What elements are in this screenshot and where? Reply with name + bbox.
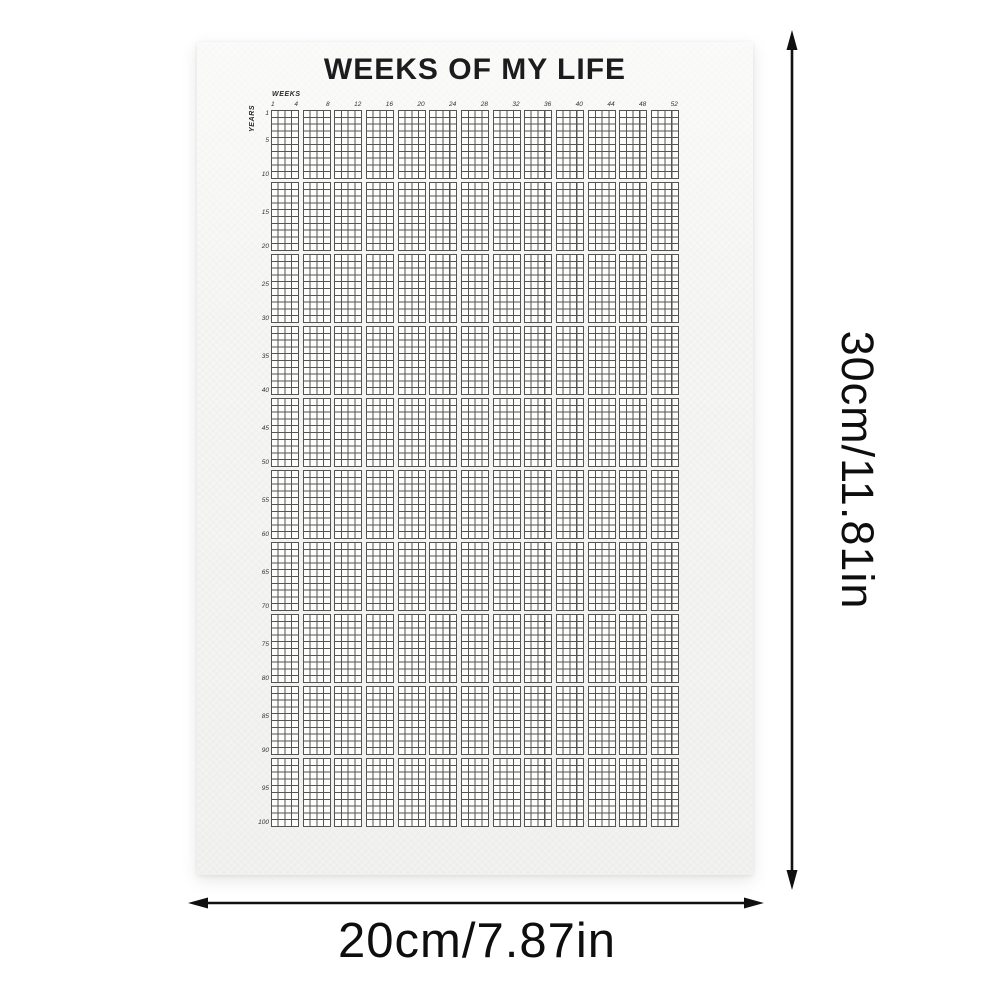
year-label-block: 1520 — [251, 182, 269, 251]
week-cells-block — [366, 326, 394, 395]
year-number: 50 — [262, 459, 269, 466]
arrowhead-right-icon — [744, 898, 764, 909]
week-cells-block — [461, 758, 489, 827]
week-number: 4 — [271, 101, 299, 109]
year-number: 60 — [262, 531, 269, 538]
week-cells-block — [303, 758, 331, 827]
week-number: 8 — [303, 101, 331, 109]
year-label-block: 7580 — [251, 614, 269, 683]
week-cells-block — [556, 542, 584, 611]
week-cells-block — [303, 614, 331, 683]
week-cells-block — [334, 758, 362, 827]
year-number: 25 — [262, 281, 269, 288]
week-cells-block — [619, 110, 647, 179]
year-number: 5 — [265, 137, 269, 144]
week-cells-block — [556, 398, 584, 467]
week-cells-block — [334, 542, 362, 611]
week-cells-block — [588, 326, 616, 395]
week-cells-block — [651, 542, 679, 611]
year-label-block: 6570 — [251, 542, 269, 611]
week-cells-block — [524, 326, 552, 395]
week-cells-block — [556, 758, 584, 827]
week-number: 1 — [271, 101, 275, 109]
week-cells-block — [588, 686, 616, 755]
week-cells-block — [429, 110, 457, 179]
year-numbers-column: 1510152025303540455055606570758085909510… — [251, 110, 269, 827]
week-cells-block — [493, 398, 521, 467]
week-cells-block — [398, 686, 426, 755]
week-cells-block — [303, 110, 331, 179]
week-number: 16 — [366, 101, 394, 109]
week-cells-block — [619, 326, 647, 395]
week-cells-block — [461, 686, 489, 755]
week-cells-block — [366, 110, 394, 179]
week-cells-block — [334, 254, 362, 323]
life-calendar-poster: WEEKS OF MY LIFE WEEKS YEARS 14812162024… — [197, 42, 753, 875]
week-number: 20 — [398, 101, 426, 109]
product-photo-scene: WEEKS OF MY LIFE WEEKS YEARS 14812162024… — [0, 0, 1000, 1000]
week-cells-block — [429, 398, 457, 467]
week-cells-block — [366, 470, 394, 539]
week-cells-block — [461, 398, 489, 467]
year-number: 80 — [262, 675, 269, 682]
week-cells-block — [651, 326, 679, 395]
week-cells-block — [303, 470, 331, 539]
week-cells-block — [619, 686, 647, 755]
week-cells-block — [619, 758, 647, 827]
year-label-block: 1510 — [251, 110, 269, 179]
week-cells-block — [524, 254, 552, 323]
life-weeks-grid — [271, 110, 679, 827]
week-cells-block — [366, 398, 394, 467]
week-cells-block — [588, 470, 616, 539]
week-number: 12 — [334, 101, 362, 109]
arrowhead-down-icon — [787, 870, 798, 890]
year-number: 30 — [262, 315, 269, 322]
week-cells-block — [334, 686, 362, 755]
week-cells-block — [334, 182, 362, 251]
week-cells-block — [493, 326, 521, 395]
week-number: 48 — [619, 101, 647, 109]
week-cells-block — [524, 470, 552, 539]
week-cells-block — [524, 542, 552, 611]
week-cells-block — [493, 470, 521, 539]
week-cells-block — [303, 686, 331, 755]
week-cells-block — [651, 758, 679, 827]
week-cells-block — [651, 470, 679, 539]
week-cells-block — [619, 614, 647, 683]
width-dimension-label: 20cm/7.87in — [338, 913, 616, 969]
week-number: 36 — [524, 101, 552, 109]
week-cells-block — [461, 542, 489, 611]
week-cells-block — [398, 110, 426, 179]
week-cells-block — [461, 182, 489, 251]
year-number: 100 — [258, 819, 269, 826]
week-cells-block — [429, 254, 457, 323]
week-number: 24 — [429, 101, 457, 109]
week-cells-block — [588, 182, 616, 251]
week-cells-block — [493, 254, 521, 323]
week-cells-block — [461, 470, 489, 539]
week-cells-block — [524, 110, 552, 179]
year-number: 35 — [262, 353, 269, 360]
week-cells-block — [271, 326, 299, 395]
week-cells-block — [429, 470, 457, 539]
week-cells-block — [366, 182, 394, 251]
week-cells-block — [588, 254, 616, 323]
height-dimension-arrow — [784, 30, 800, 890]
year-number: 10 — [262, 171, 269, 178]
week-cells-block — [366, 686, 394, 755]
year-number: 15 — [262, 209, 269, 216]
year-number: 40 — [262, 387, 269, 394]
week-cells-block — [588, 110, 616, 179]
week-cells-block — [271, 686, 299, 755]
week-cells-block — [556, 326, 584, 395]
week-cells-block — [524, 182, 552, 251]
week-cells-block — [398, 470, 426, 539]
week-cells-block — [429, 686, 457, 755]
week-number: 32 — [493, 101, 521, 109]
week-cells-block — [524, 686, 552, 755]
week-cells-block — [651, 182, 679, 251]
year-number: 75 — [262, 641, 269, 648]
year-number: 90 — [262, 747, 269, 754]
week-cells-block — [398, 614, 426, 683]
week-cells-block — [493, 182, 521, 251]
year-label-block: 5560 — [251, 470, 269, 539]
year-number: 70 — [262, 603, 269, 610]
week-cells-block — [429, 758, 457, 827]
week-cells-block — [303, 254, 331, 323]
week-cells-block — [334, 110, 362, 179]
week-cells-block — [271, 398, 299, 467]
week-cells-block — [524, 398, 552, 467]
week-cells-block — [429, 182, 457, 251]
year-number: 20 — [262, 243, 269, 250]
week-cells-block — [366, 758, 394, 827]
poster-title: WEEKS OF MY LIFE — [197, 54, 753, 86]
week-cells-block — [398, 398, 426, 467]
week-cells-block — [651, 398, 679, 467]
week-cells-block — [334, 470, 362, 539]
year-label-block: 95100 — [251, 758, 269, 827]
week-cells-block — [366, 254, 394, 323]
week-cells-block — [588, 614, 616, 683]
week-cells-block — [524, 614, 552, 683]
week-cells-block — [619, 182, 647, 251]
week-cells-block — [556, 254, 584, 323]
week-cells-block — [651, 686, 679, 755]
week-cells-block — [588, 542, 616, 611]
week-number: 28 — [461, 101, 489, 109]
week-cells-block — [334, 326, 362, 395]
week-cells-block — [429, 542, 457, 611]
week-cells-block — [366, 614, 394, 683]
weeks-axis-label: WEEKS — [272, 91, 301, 99]
week-cells-block — [556, 614, 584, 683]
week-cells-block — [271, 254, 299, 323]
week-cells-block — [461, 110, 489, 179]
week-cells-block — [429, 614, 457, 683]
week-cells-block — [493, 614, 521, 683]
year-number: 85 — [262, 713, 269, 720]
week-cells-block — [493, 758, 521, 827]
year-number: 55 — [262, 497, 269, 504]
week-cells-block — [398, 326, 426, 395]
year-label-block: 3540 — [251, 326, 269, 395]
week-number: 40 — [556, 101, 584, 109]
week-cells-block — [271, 542, 299, 611]
week-cells-block — [334, 614, 362, 683]
week-cells-block — [493, 686, 521, 755]
week-cells-block — [366, 542, 394, 611]
week-number: 52 — [651, 101, 679, 109]
week-cells-block — [398, 182, 426, 251]
year-number: 1 — [265, 110, 269, 117]
week-cells-block — [461, 254, 489, 323]
week-cells-block — [556, 110, 584, 179]
week-cells-block — [556, 182, 584, 251]
week-cells-block — [493, 542, 521, 611]
week-cells-block — [524, 758, 552, 827]
week-cells-block — [556, 470, 584, 539]
year-number: 45 — [262, 425, 269, 432]
week-cells-block — [398, 254, 426, 323]
week-cells-block — [619, 398, 647, 467]
week-cells-block — [651, 254, 679, 323]
height-dimension-label: 30cm/11.81in — [831, 331, 883, 610]
week-cells-block — [398, 758, 426, 827]
week-cells-block — [588, 758, 616, 827]
year-label-block: 2530 — [251, 254, 269, 323]
week-cells-block — [619, 542, 647, 611]
week-cells-block — [461, 326, 489, 395]
week-cells-block — [619, 470, 647, 539]
year-number: 65 — [262, 569, 269, 576]
year-label-block: 4550 — [251, 398, 269, 467]
week-cells-block — [398, 542, 426, 611]
week-cells-block — [429, 326, 457, 395]
week-number: 44 — [588, 101, 616, 109]
week-cells-block — [651, 614, 679, 683]
week-cells-block — [303, 182, 331, 251]
week-cells-block — [271, 758, 299, 827]
week-numbers-row: 1481216202428323640444852 — [271, 101, 679, 109]
year-label-block: 8590 — [251, 686, 269, 755]
week-cells-block — [651, 110, 679, 179]
week-cells-block — [619, 254, 647, 323]
year-number: 95 — [262, 785, 269, 792]
week-cells-block — [461, 614, 489, 683]
week-cells-block — [556, 686, 584, 755]
week-cells-block — [271, 614, 299, 683]
week-cells-block — [334, 398, 362, 467]
week-cells-block — [303, 542, 331, 611]
width-dimension-arrow — [188, 895, 764, 911]
week-cells-block — [271, 470, 299, 539]
week-cells-block — [303, 398, 331, 467]
week-cells-block — [493, 110, 521, 179]
week-cells-block — [303, 326, 331, 395]
week-cells-block — [271, 110, 299, 179]
week-cells-block — [271, 182, 299, 251]
week-cells-block — [588, 398, 616, 467]
